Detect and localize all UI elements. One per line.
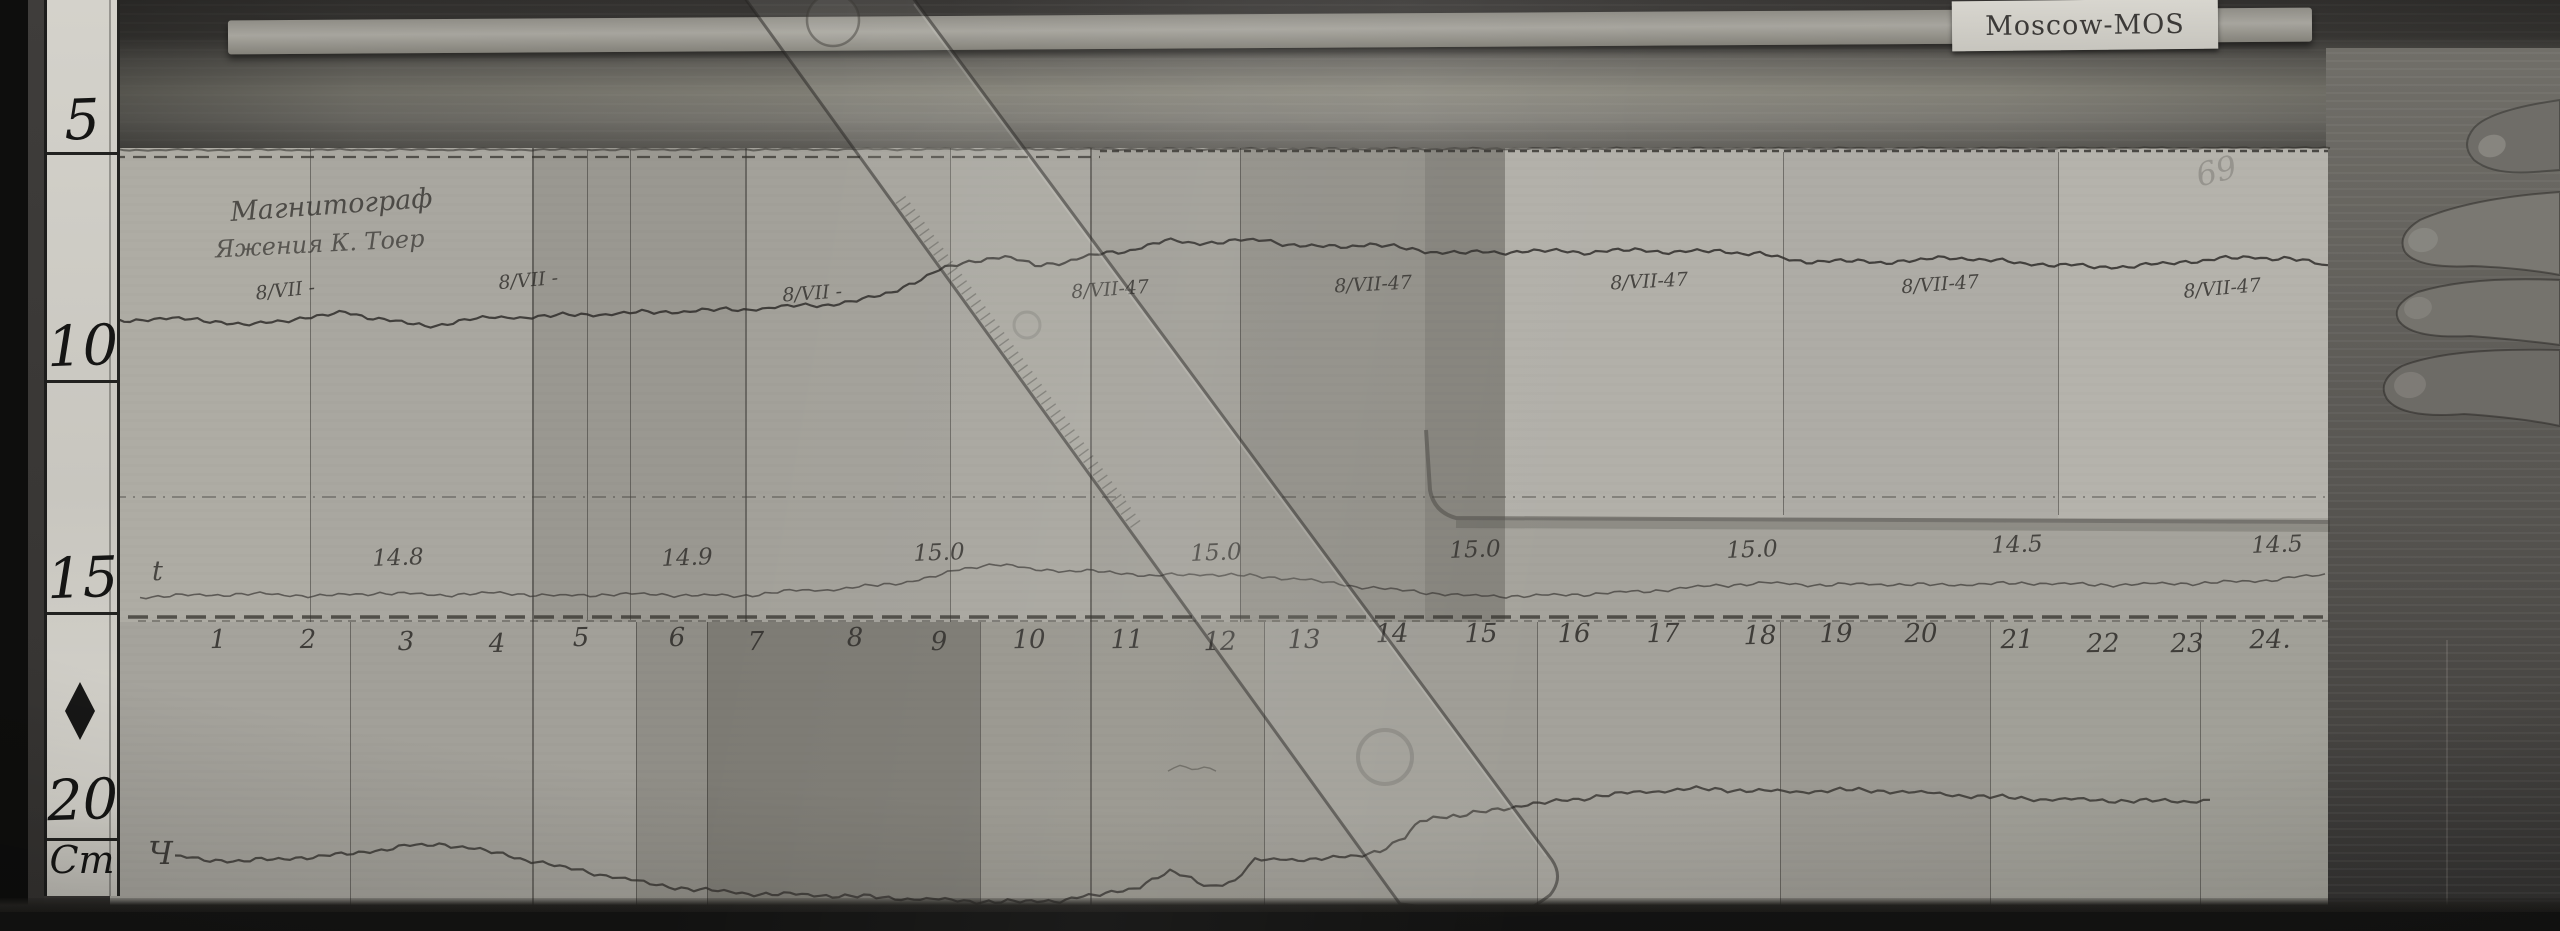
- photo-bottom-border: [0, 912, 2560, 931]
- hand: [0, 0, 2560, 931]
- photo-frame: Магнитограф Яжения К. Тоер t Ч 69 8/VII …: [0, 0, 2560, 931]
- finger-1: [2467, 100, 2560, 173]
